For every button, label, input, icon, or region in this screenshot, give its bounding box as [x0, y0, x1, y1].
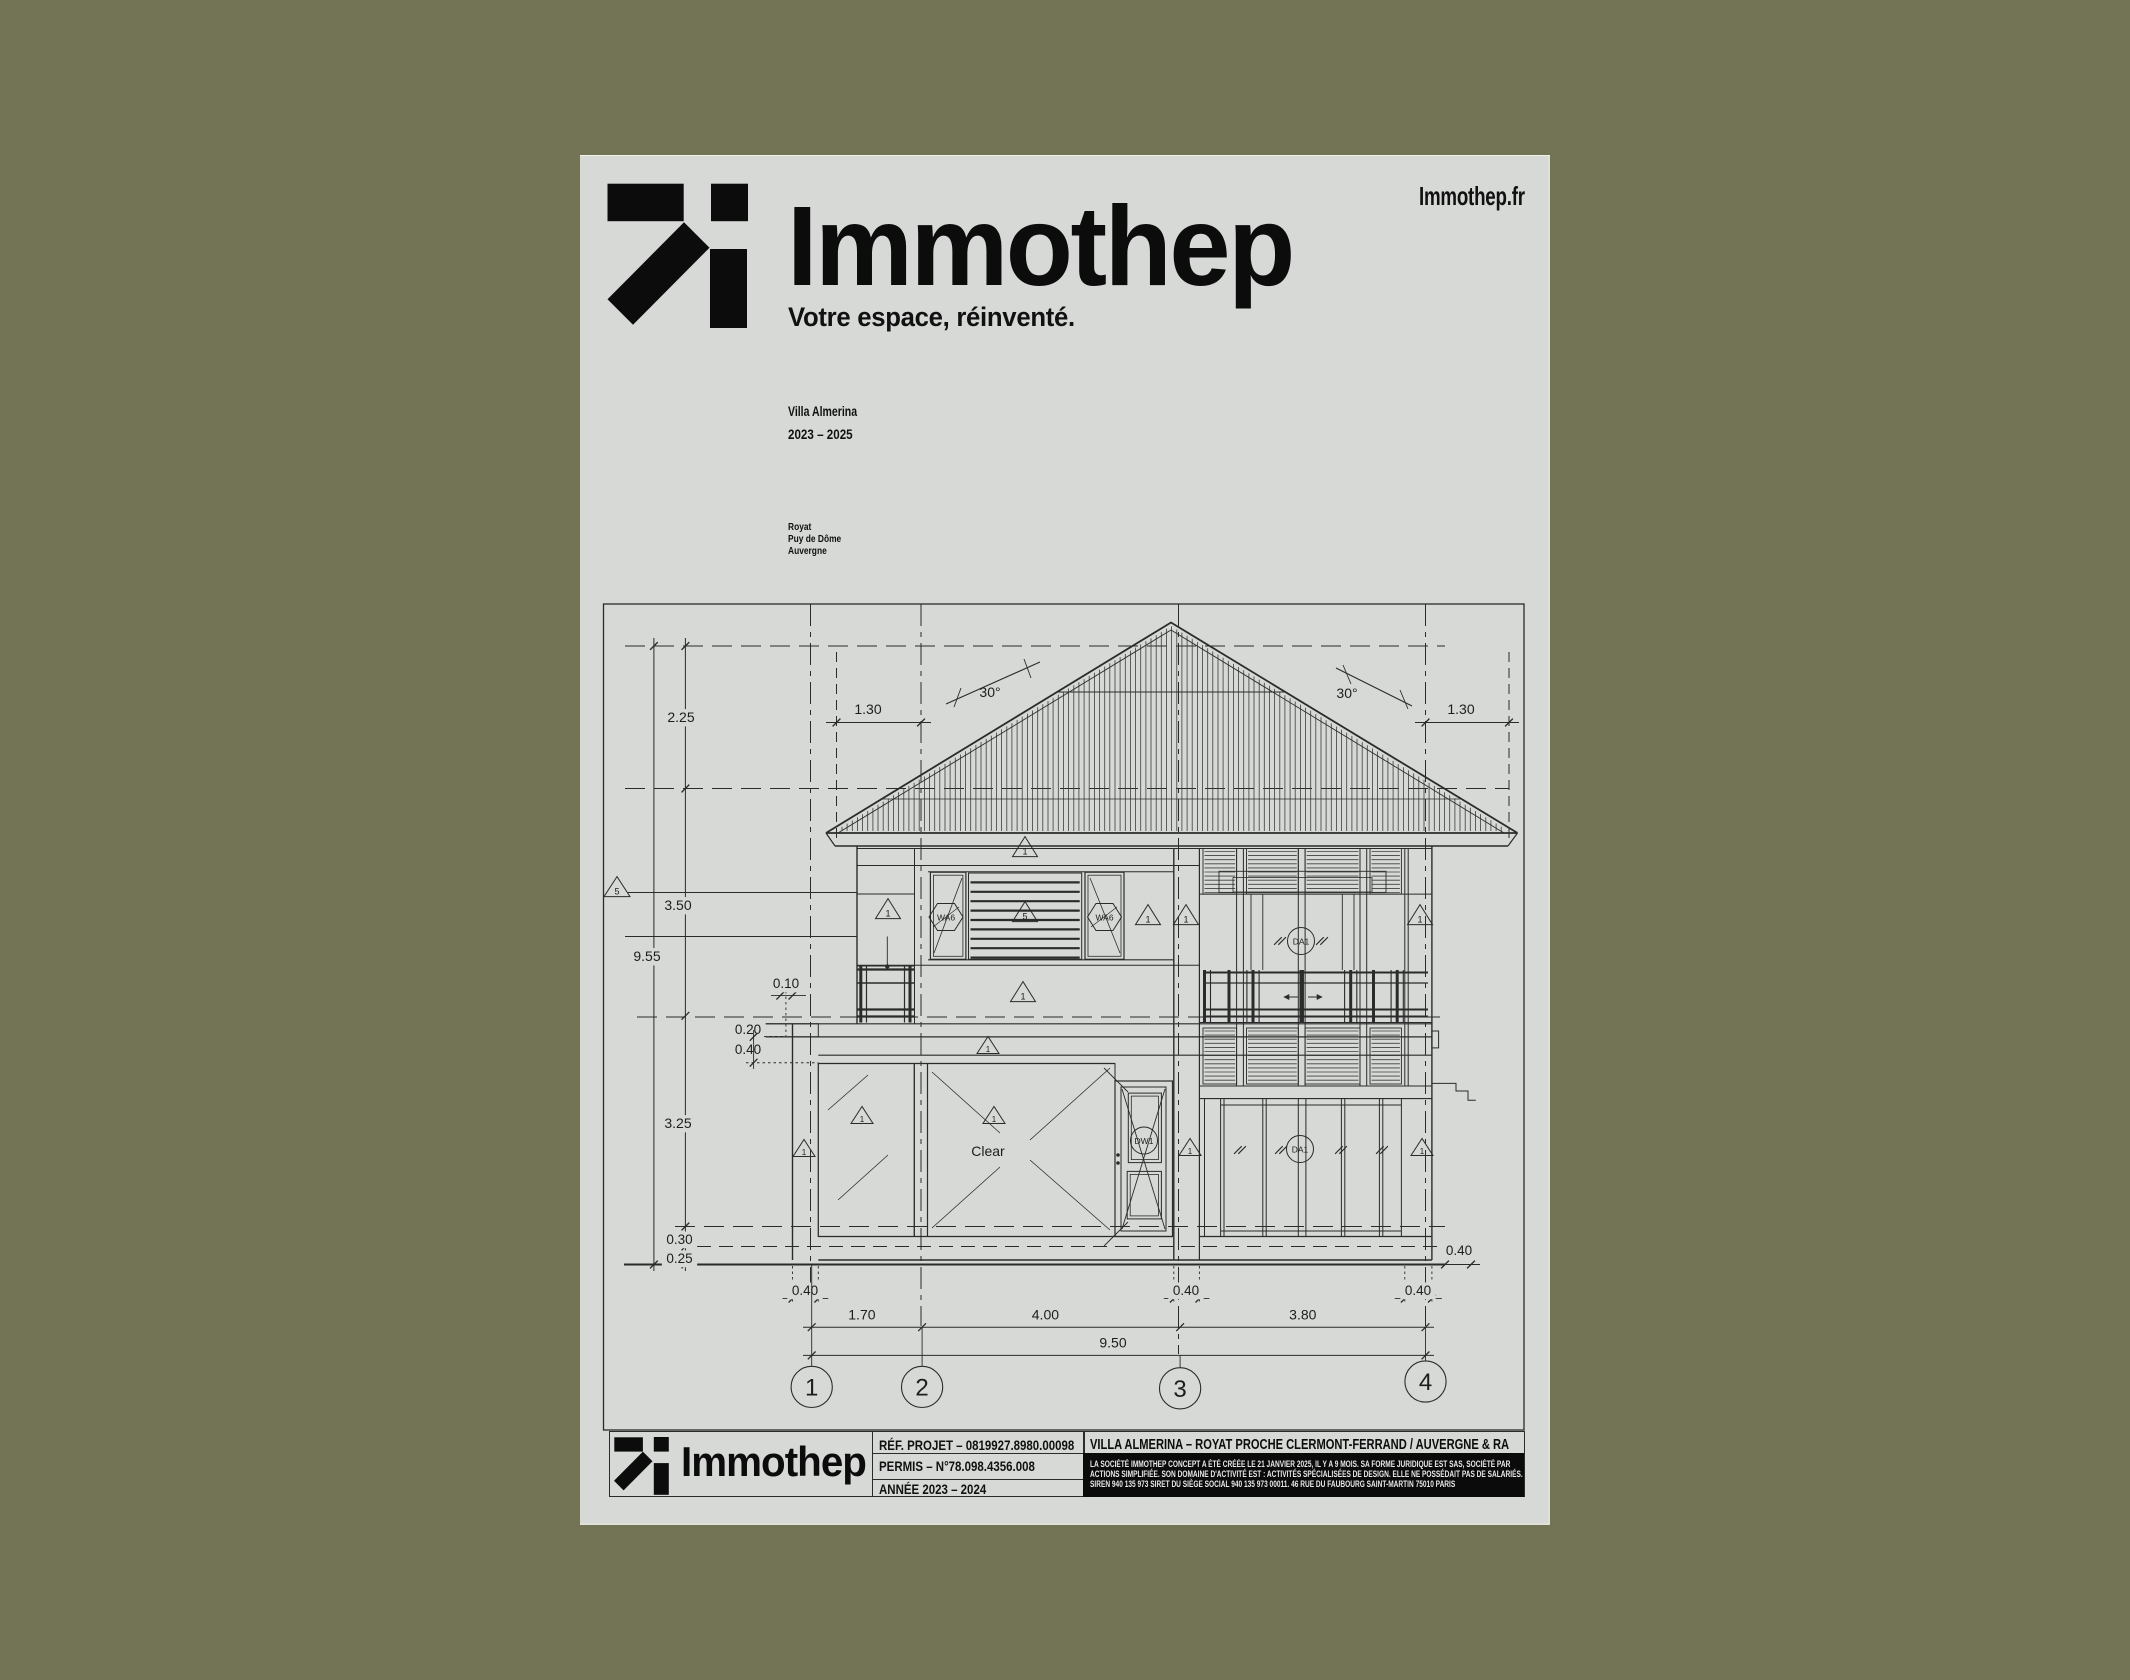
svg-text:9.55: 9.55: [633, 948, 660, 964]
svg-text:DA1: DA1: [1293, 937, 1310, 947]
svg-text:1: 1: [860, 1115, 865, 1124]
svg-text:WA6: WA6: [1095, 913, 1113, 923]
svg-text:4: 4: [1419, 1369, 1432, 1396]
svg-text:0.10: 0.10: [773, 976, 799, 991]
svg-text:30°: 30°: [1336, 685, 1357, 701]
svg-text:9.50: 9.50: [1099, 1335, 1126, 1351]
svg-text:3.80: 3.80: [1289, 1306, 1316, 1322]
svg-text:1: 1: [805, 1374, 818, 1401]
svg-text:1: 1: [1020, 992, 1025, 1002]
svg-text:0.25: 0.25: [666, 1251, 692, 1266]
svg-text:1: 1: [1417, 915, 1422, 925]
svg-text:4.00: 4.00: [1032, 1306, 1059, 1322]
svg-text:0.20: 0.20: [735, 1022, 761, 1037]
svg-text:0.40: 0.40: [792, 1283, 818, 1298]
svg-text:0.40: 0.40: [1446, 1243, 1472, 1258]
svg-text:1.30: 1.30: [854, 701, 881, 717]
svg-text:DW1: DW1: [1135, 1136, 1154, 1146]
svg-text:5: 5: [1022, 912, 1027, 922]
svg-text:1: 1: [1145, 915, 1150, 925]
svg-text:3: 3: [1173, 1376, 1186, 1403]
svg-text:1.70: 1.70: [848, 1306, 875, 1322]
svg-text:5: 5: [614, 887, 619, 897]
svg-text:1: 1: [1183, 915, 1188, 925]
svg-text:0.40: 0.40: [1173, 1283, 1199, 1298]
svg-text:1: 1: [802, 1148, 807, 1157]
svg-text:30°: 30°: [979, 684, 1000, 700]
svg-text:3.50: 3.50: [664, 897, 691, 913]
svg-text:1: 1: [1420, 1147, 1425, 1156]
svg-text:1: 1: [1022, 847, 1027, 857]
svg-text:3.25: 3.25: [664, 1115, 691, 1131]
svg-text:0.40: 0.40: [1405, 1283, 1431, 1298]
svg-text:1: 1: [986, 1045, 991, 1054]
svg-text:Clear: Clear: [971, 1143, 1005, 1159]
svg-text:1: 1: [885, 909, 890, 919]
svg-text:WA6: WA6: [937, 913, 955, 923]
svg-text:1.30: 1.30: [1447, 701, 1474, 717]
svg-text:1: 1: [1188, 1147, 1193, 1156]
svg-text:2: 2: [915, 1374, 928, 1401]
svg-text:DA1: DA1: [1292, 1145, 1309, 1155]
svg-text:0.40: 0.40: [735, 1042, 761, 1057]
svg-text:0.30: 0.30: [666, 1232, 692, 1247]
svg-text:2.25: 2.25: [667, 709, 694, 725]
svg-text:1: 1: [992, 1115, 997, 1124]
